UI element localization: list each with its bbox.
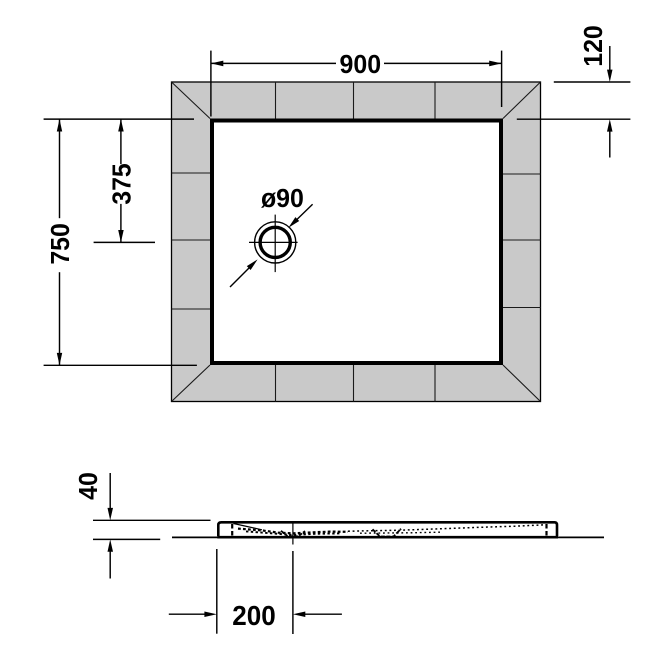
svg-text:900: 900 [340,50,382,79]
svg-text:375: 375 [108,163,137,205]
svg-text:40: 40 [74,472,103,500]
svg-text:ø90: ø90 [261,185,304,214]
svg-text:750: 750 [46,223,75,265]
svg-text:200: 200 [232,600,275,631]
svg-text:120: 120 [579,25,608,67]
